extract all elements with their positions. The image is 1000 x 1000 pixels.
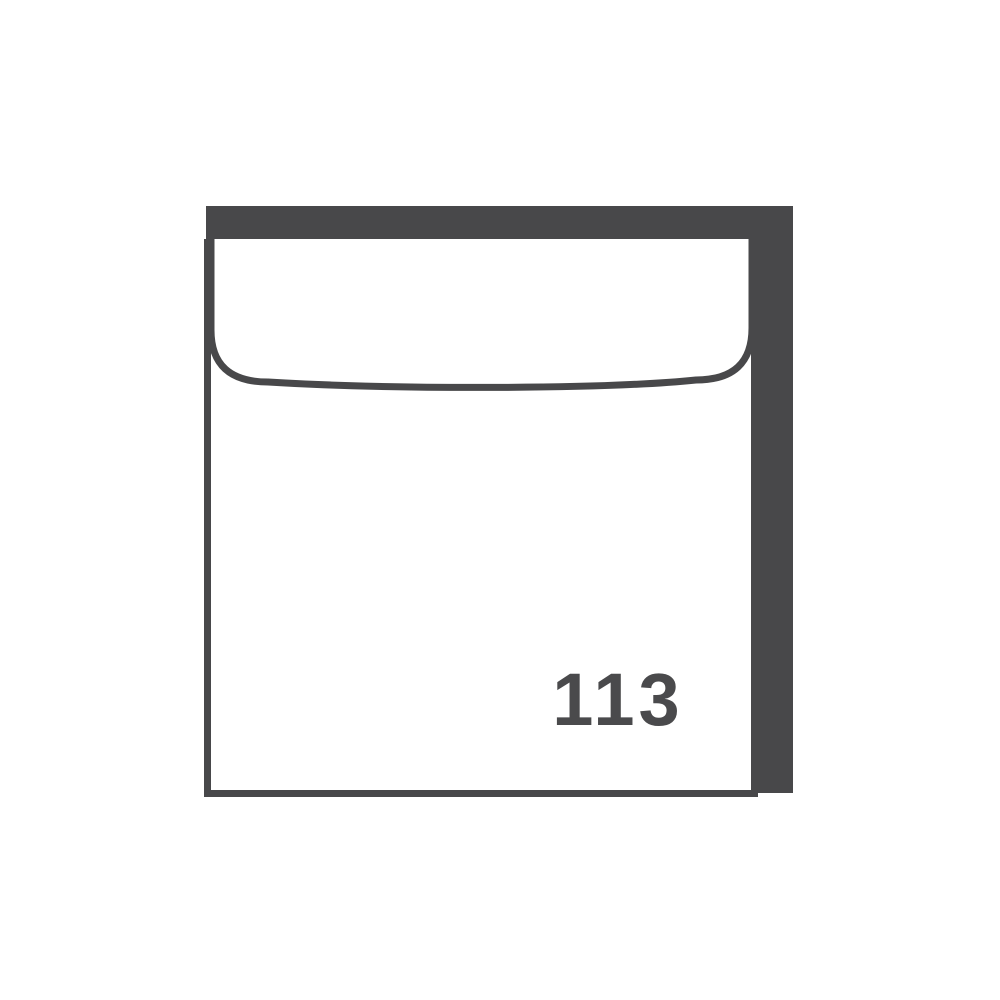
envelope-illustration: 113	[0, 0, 1000, 1000]
envelope-top-edge	[206, 206, 760, 240]
canvas: 113	[0, 0, 1000, 1000]
envelope-right-edge	[758, 206, 793, 793]
envelope-number: 113	[552, 658, 683, 741]
